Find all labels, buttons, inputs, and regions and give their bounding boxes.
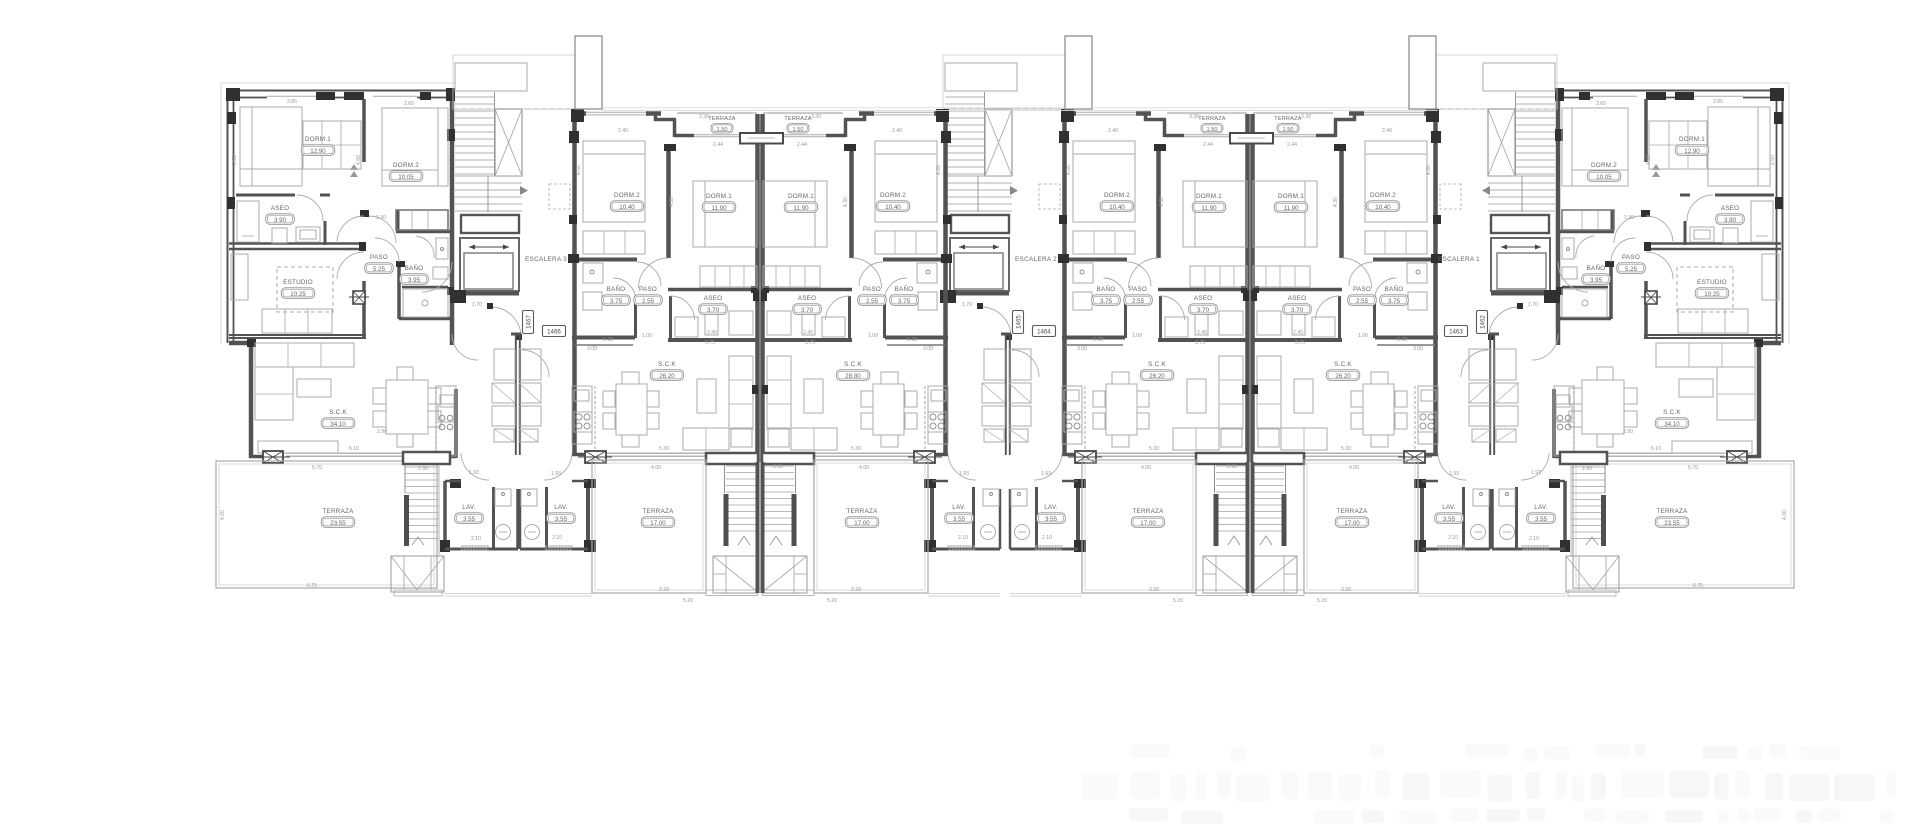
svg-text:1.00: 1.00 [868, 333, 878, 339]
svg-text:LAV.: LAV. [1442, 504, 1456, 511]
svg-text:1.00: 1.00 [1132, 333, 1142, 339]
svg-text:2.55: 2.55 [1356, 298, 1369, 305]
svg-text:3.70: 3.70 [1291, 307, 1304, 314]
svg-text:3.55: 3.55 [1535, 516, 1548, 523]
svg-text:6.10: 6.10 [1651, 446, 1661, 452]
svg-text:1.70: 1.70 [472, 302, 482, 308]
svg-text:ASEO: ASEO [271, 205, 290, 212]
svg-text:3.75: 3.75 [1388, 298, 1401, 305]
svg-text:1.50: 1.50 [717, 127, 728, 133]
svg-text:S.C.K: S.C.K [844, 361, 862, 368]
svg-text:10.40: 10.40 [619, 204, 635, 211]
svg-text:10.25: 10.25 [1704, 291, 1720, 298]
svg-text:BAÑO: BAÑO [405, 263, 424, 272]
svg-text:5.30: 5.30 [851, 446, 861, 452]
svg-text:4.00: 4.00 [651, 465, 661, 471]
svg-text:3.90: 3.90 [1724, 217, 1737, 224]
svg-text:1.50: 1.50 [793, 127, 804, 133]
svg-text:5.30: 5.30 [1341, 446, 1351, 452]
svg-text:10.40: 10.40 [1109, 204, 1125, 211]
svg-text:2.44: 2.44 [797, 142, 807, 148]
svg-text:10.05: 10.05 [1596, 174, 1612, 181]
svg-text:4.30: 4.30 [843, 197, 849, 207]
svg-text:1.50: 1.50 [1207, 127, 1218, 133]
svg-text:2.44: 2.44 [1287, 142, 1297, 148]
svg-text:LAV.: LAV. [1044, 504, 1058, 511]
svg-text:3.70: 3.70 [1197, 307, 1210, 314]
svg-text:1.70: 1.70 [962, 302, 972, 308]
svg-text:LAV.: LAV. [1534, 504, 1548, 511]
svg-text:DORM.2: DORM.2 [614, 192, 640, 199]
svg-text:3.30: 3.30 [1301, 114, 1311, 120]
svg-text:3.95: 3.95 [408, 277, 421, 284]
svg-text:4.50: 4.50 [356, 155, 362, 165]
svg-text:4.00: 4.00 [936, 165, 942, 175]
svg-text:1.93: 1.93 [1531, 470, 1541, 476]
svg-text:10.05: 10.05 [398, 174, 414, 181]
svg-text:2.44: 2.44 [713, 142, 723, 148]
svg-text:2.45: 2.45 [1293, 330, 1303, 336]
svg-text:PASO: PASO [1353, 286, 1371, 293]
svg-text:3.70: 3.70 [707, 307, 720, 314]
svg-text:1.93: 1.93 [551, 471, 561, 477]
svg-text:3.55: 3.55 [953, 516, 966, 523]
svg-text:4.00: 4.00 [859, 465, 869, 471]
svg-text:DORM.2: DORM.2 [1591, 162, 1617, 169]
svg-text:2.44: 2.44 [1203, 142, 1213, 148]
svg-text:3.75: 3.75 [898, 298, 911, 305]
svg-text:TERRAZA: TERRAZA [1274, 116, 1302, 122]
svg-text:3.75: 3.75 [1100, 298, 1113, 305]
svg-text:1.00: 1.00 [1358, 333, 1368, 339]
svg-text:TERRAZA: TERRAZA [322, 508, 354, 515]
svg-text:ASEO: ASEO [704, 295, 723, 302]
svg-text:6.10: 6.10 [349, 446, 359, 452]
svg-text:23.55: 23.55 [330, 520, 346, 527]
svg-text:5.20: 5.20 [827, 598, 837, 604]
svg-text:3.30: 3.30 [1189, 114, 1199, 120]
svg-text:S.C.K: S.C.K [658, 361, 676, 368]
svg-text:3.55: 3.55 [463, 516, 476, 523]
svg-text:2.55: 2.55 [866, 298, 879, 305]
svg-text:4.50: 4.50 [1646, 155, 1652, 165]
svg-text:2.90: 2.90 [1582, 466, 1592, 472]
svg-text:4.00: 4.00 [1426, 165, 1432, 175]
svg-text:3.55: 3.55 [1443, 516, 1456, 523]
svg-text:BAÑO: BAÑO [1097, 284, 1116, 293]
svg-text:PASO: PASO [1129, 286, 1147, 293]
svg-text:1465: 1465 [1015, 315, 1022, 329]
svg-text:11.90: 11.90 [793, 205, 809, 212]
svg-text:ESTUDIO: ESTUDIO [283, 279, 313, 286]
svg-text:2.55: 2.55 [642, 298, 655, 305]
svg-text:PASO: PASO [863, 286, 881, 293]
svg-text:ESCALERA 3: ESCALERA 3 [525, 256, 567, 263]
svg-text:3.00: 3.00 [923, 346, 933, 352]
svg-text:11.90: 11.90 [1283, 205, 1299, 212]
svg-text:3.20: 3.20 [1149, 587, 1159, 593]
svg-text:3.20: 3.20 [851, 587, 861, 593]
svg-text:4.30: 4.30 [669, 197, 675, 207]
svg-text:1.00: 1.00 [642, 333, 652, 339]
svg-text:2.10: 2.10 [1042, 535, 1052, 541]
svg-text:DORM.1: DORM.1 [1278, 193, 1304, 200]
svg-text:1.93: 1.93 [1041, 471, 1051, 477]
svg-text:10.25: 10.25 [290, 291, 306, 298]
svg-text:1467: 1467 [525, 315, 532, 329]
svg-text:26.20: 26.20 [1149, 373, 1165, 380]
svg-text:3.75: 3.75 [1195, 340, 1205, 346]
svg-text:1.93: 1.93 [959, 471, 969, 477]
svg-text:2.55: 2.55 [1132, 298, 1145, 305]
svg-text:3.00: 3.00 [1413, 346, 1423, 352]
svg-text:5.25: 5.25 [373, 266, 386, 273]
svg-text:3.95: 3.95 [1590, 277, 1603, 284]
svg-text:PASO: PASO [1622, 254, 1640, 261]
svg-text:17.00: 17.00 [1344, 520, 1360, 527]
svg-text:4.00: 4.00 [1141, 465, 1151, 471]
svg-text:1.93: 1.93 [1449, 471, 1459, 477]
svg-text:1.42: 1.42 [603, 337, 613, 343]
svg-text:3.00: 3.00 [1077, 346, 1087, 352]
svg-text:1.93: 1.93 [469, 470, 479, 476]
svg-text:3.30: 3.30 [811, 114, 821, 120]
svg-text:TERRAZA: TERRAZA [708, 116, 736, 122]
svg-text:2.10: 2.10 [552, 535, 562, 541]
svg-text:5.70: 5.70 [312, 465, 322, 471]
svg-text:0.90: 0.90 [773, 464, 783, 470]
svg-text:5.20: 5.20 [683, 598, 693, 604]
svg-text:12.90: 12.90 [310, 148, 326, 155]
svg-text:3.20: 3.20 [1341, 587, 1351, 593]
svg-text:ASEO: ASEO [798, 295, 817, 302]
svg-text:1.50: 1.50 [1283, 127, 1294, 133]
svg-text:1463: 1463 [1449, 328, 1463, 335]
svg-text:3.75: 3.75 [1295, 340, 1305, 346]
svg-text:3.00: 3.00 [587, 346, 597, 352]
svg-text:0.90: 0.90 [1227, 464, 1237, 470]
svg-text:1.70: 1.70 [1528, 302, 1538, 308]
svg-text:12.90: 12.90 [1684, 148, 1700, 155]
svg-text:3.85: 3.85 [1713, 99, 1723, 105]
svg-text:TERRAZA: TERRAZA [784, 116, 812, 122]
svg-text:2.90: 2.90 [377, 429, 387, 435]
svg-text:DORM.1: DORM.1 [1679, 136, 1705, 143]
svg-text:BAÑO: BAÑO [895, 284, 914, 293]
svg-text:ASEO: ASEO [1194, 295, 1213, 302]
svg-text:5.30: 5.30 [659, 446, 669, 452]
svg-text:6.75: 6.75 [1693, 583, 1703, 589]
svg-text:34.10: 34.10 [330, 421, 346, 428]
svg-text:2.10: 2.10 [1448, 535, 1458, 541]
svg-text:3.30: 3.30 [699, 114, 709, 120]
svg-text:4.30: 4.30 [1159, 197, 1165, 207]
svg-text:DORM.1: DORM.1 [1196, 193, 1222, 200]
svg-text:ASEO: ASEO [1721, 205, 1740, 212]
svg-text:DORM.2: DORM.2 [393, 162, 419, 169]
svg-text:4.00: 4.00 [1066, 165, 1072, 175]
svg-text:11.90: 11.90 [711, 205, 727, 212]
svg-text:TERRAZA: TERRAZA [642, 508, 674, 515]
svg-text:2.65: 2.65 [1596, 101, 1606, 107]
svg-text:10.40: 10.40 [1375, 204, 1391, 211]
svg-text:S.C.K: S.C.K [1334, 361, 1352, 368]
svg-text:LAV.: LAV. [554, 504, 568, 511]
svg-text:2.10: 2.10 [958, 535, 968, 541]
svg-text:3.75: 3.75 [705, 340, 715, 346]
svg-text:2.40: 2.40 [1382, 128, 1392, 134]
svg-text:10.40: 10.40 [885, 204, 901, 211]
svg-text:3.75: 3.75 [805, 340, 815, 346]
svg-text:2.40: 2.40 [892, 128, 902, 134]
svg-text:ESCALERA 1: ESCALERA 1 [1438, 256, 1480, 263]
svg-text:2.90: 2.90 [1623, 429, 1633, 435]
svg-text:1.42: 1.42 [1397, 337, 1407, 343]
svg-text:1466: 1466 [547, 328, 561, 335]
svg-text:3.70: 3.70 [801, 307, 814, 314]
svg-text:23.55: 23.55 [1664, 520, 1680, 527]
svg-text:2.45: 2.45 [803, 330, 813, 336]
svg-text:LAV.: LAV. [462, 504, 476, 511]
svg-text:2.45: 2.45 [707, 330, 717, 336]
svg-text:S.C.K: S.C.K [1148, 361, 1166, 368]
svg-text:BAÑO: BAÑO [607, 284, 626, 293]
svg-text:5.20: 5.20 [1317, 598, 1327, 604]
svg-text:2.45: 2.45 [1197, 330, 1207, 336]
svg-text:4.00: 4.00 [576, 165, 582, 175]
svg-text:5.20: 5.20 [1173, 598, 1183, 604]
svg-text:4.00: 4.00 [220, 510, 226, 520]
svg-text:5.25: 5.25 [1625, 266, 1638, 273]
svg-text:DORM.1: DORM.1 [706, 193, 732, 200]
svg-text:TERRAZA: TERRAZA [1336, 508, 1368, 515]
svg-text:DORM.1: DORM.1 [305, 136, 331, 143]
svg-text:3.20: 3.20 [659, 587, 669, 593]
svg-text:3.55: 3.55 [1045, 516, 1058, 523]
svg-text:4.30: 4.30 [1333, 197, 1339, 207]
svg-text:TERRAZA: TERRAZA [846, 508, 878, 515]
svg-text:DORM.2: DORM.2 [1104, 192, 1130, 199]
svg-text:LAV.: LAV. [952, 504, 966, 511]
svg-text:ASEO: ASEO [1288, 295, 1307, 302]
svg-text:1.42: 1.42 [1093, 337, 1103, 343]
svg-text:34.10: 34.10 [1664, 421, 1680, 428]
svg-text:ESTUDIO: ESTUDIO [1697, 279, 1727, 286]
svg-text:BAÑO: BAÑO [1385, 284, 1404, 293]
svg-text:4.00: 4.00 [1782, 510, 1788, 520]
svg-text:5.70: 5.70 [1688, 465, 1698, 471]
svg-text:PASO: PASO [639, 286, 657, 293]
svg-text:DORM.2: DORM.2 [1370, 192, 1396, 199]
svg-text:3.85: 3.85 [287, 99, 297, 105]
svg-text:1462: 1462 [1479, 315, 1486, 329]
svg-text:1.90: 1.90 [376, 215, 386, 221]
svg-text:S.C.K: S.C.K [1663, 409, 1681, 416]
svg-text:2.40: 2.40 [618, 128, 628, 134]
svg-text:ESCALERA 2: ESCALERA 2 [1015, 256, 1057, 263]
svg-text:6.75: 6.75 [307, 583, 317, 589]
svg-text:26.20: 26.20 [659, 373, 675, 380]
svg-text:4.00: 4.00 [1349, 465, 1359, 471]
svg-text:17.00: 17.00 [854, 520, 870, 527]
svg-text:2.90: 2.90 [418, 466, 428, 472]
svg-text:DORM.2: DORM.2 [880, 192, 906, 199]
svg-text:26.20: 26.20 [1335, 373, 1351, 380]
svg-text:2.65: 2.65 [404, 101, 414, 107]
svg-text:TERRAZA: TERRAZA [1656, 508, 1688, 515]
svg-text:2.50: 2.50 [1770, 155, 1776, 165]
svg-text:28.80: 28.80 [845, 373, 861, 380]
svg-text:TERRAZA: TERRAZA [1132, 508, 1164, 515]
svg-text:3.55: 3.55 [555, 516, 568, 523]
svg-text:2.10: 2.10 [471, 536, 481, 542]
svg-text:17.00: 17.00 [1140, 520, 1156, 527]
svg-text:5.30: 5.30 [1149, 446, 1159, 452]
svg-text:1.42: 1.42 [907, 337, 917, 343]
svg-text:BAÑO: BAÑO [1587, 263, 1606, 272]
svg-text:3.90: 3.90 [274, 217, 287, 224]
svg-text:DORM.1: DORM.1 [788, 193, 814, 200]
svg-text:2.40: 2.40 [1108, 128, 1118, 134]
svg-text:1.90: 1.90 [1624, 215, 1634, 221]
svg-text:2.10: 2.10 [1529, 536, 1539, 542]
svg-text:1464: 1464 [1037, 328, 1051, 335]
svg-text:TERRAZA: TERRAZA [1198, 116, 1226, 122]
svg-text:S.C.K: S.C.K [329, 409, 347, 416]
svg-text:11.90: 11.90 [1201, 205, 1217, 212]
svg-text:17.00: 17.00 [650, 520, 666, 527]
svg-text:3.75: 3.75 [610, 298, 623, 305]
svg-text:2.50: 2.50 [232, 155, 238, 165]
svg-text:PASO: PASO [370, 254, 388, 261]
